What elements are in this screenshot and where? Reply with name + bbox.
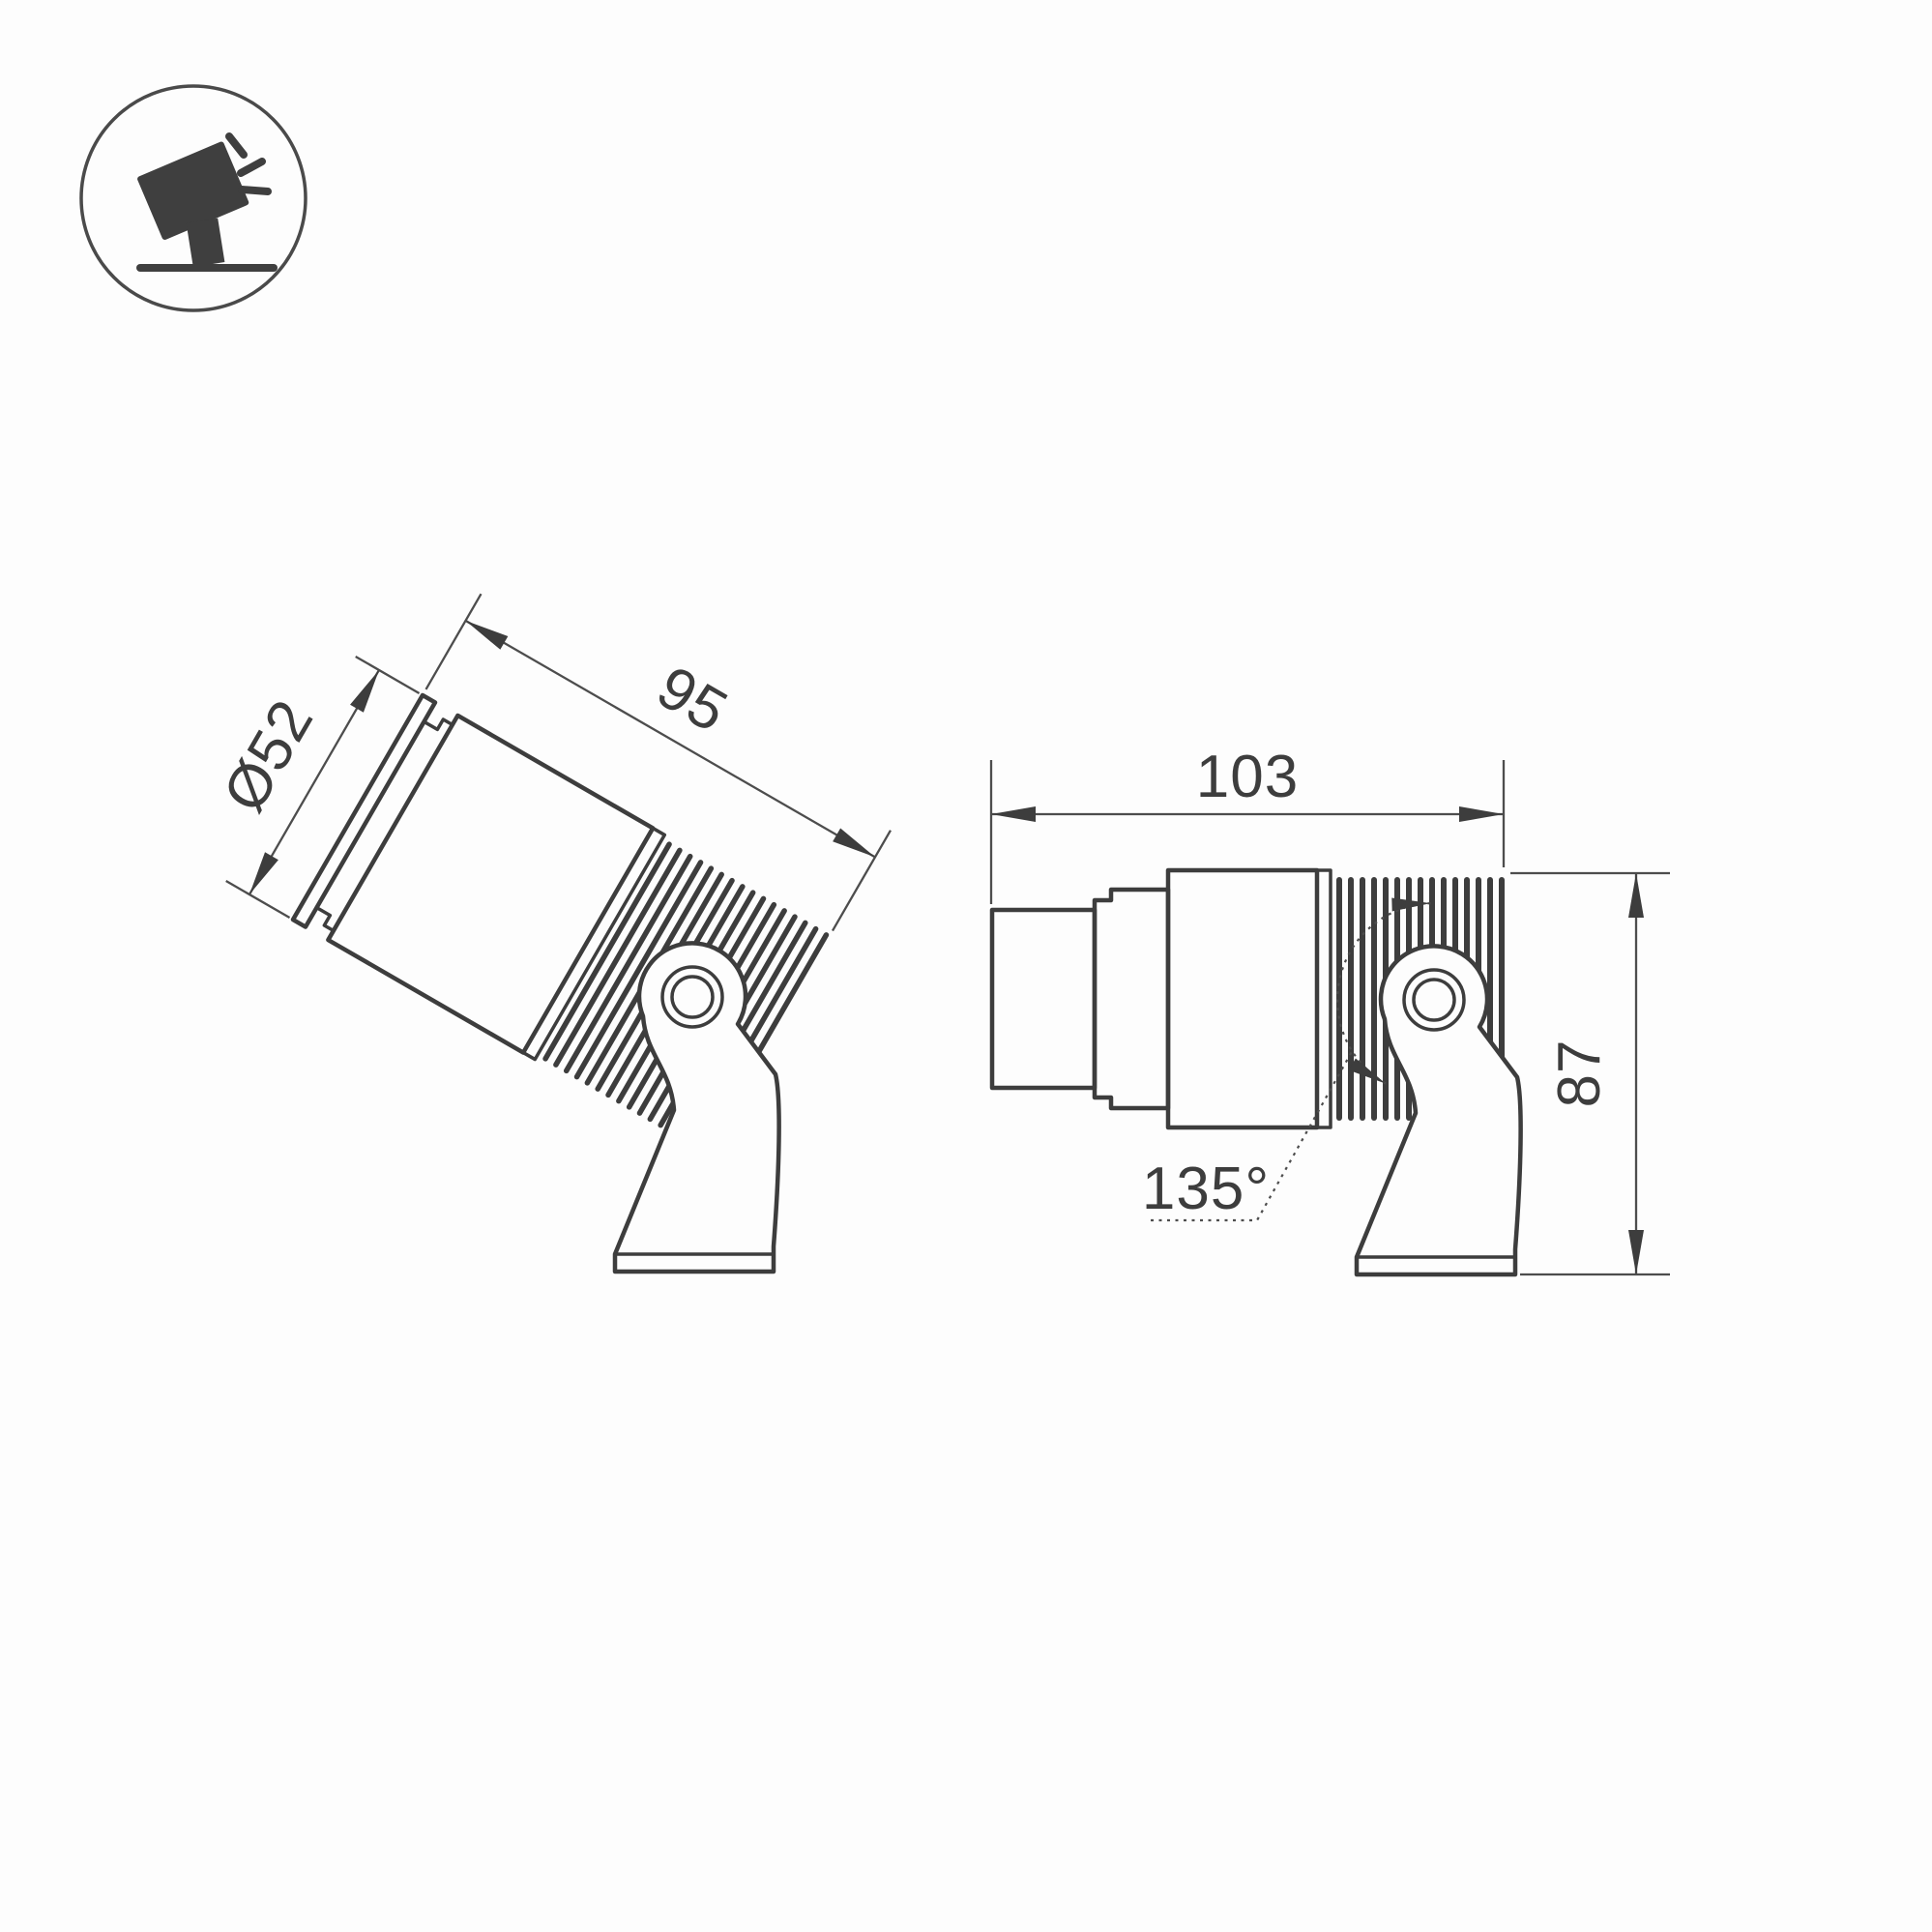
- rotation-135-label: 135°: [1142, 1156, 1270, 1222]
- drawing-canvas: 95 Ø52: [0, 0, 1932, 1932]
- lens-hood: [992, 910, 1095, 1088]
- dim-arrow: [1628, 873, 1644, 918]
- tilted-body-group: 95 Ø52: [175, 484, 915, 1156]
- arc-arrow: [1349, 1059, 1386, 1084]
- dim-arrow: [350, 666, 386, 713]
- tilted-view: 95 Ø52: [175, 484, 915, 1272]
- spotlight-pictogram-badge: [81, 86, 306, 310]
- height-87-label: 87: [1546, 1039, 1613, 1108]
- side-view: 135° 103 87: [991, 744, 1670, 1274]
- light-ray-icon: [229, 136, 244, 155]
- main-body: [1168, 870, 1317, 1127]
- spotlight-stem-icon: [187, 219, 225, 268]
- light-ray-icon: [242, 190, 268, 191]
- length-103-label: 103: [1196, 744, 1299, 810]
- dim-arrow: [1628, 1230, 1644, 1274]
- light-ray-icon: [241, 161, 262, 173]
- dim-arrow: [833, 828, 879, 864]
- dim-arrow: [1459, 806, 1504, 822]
- side-view-bracket: [1357, 946, 1521, 1274]
- diameter-52-label: Ø52: [211, 688, 327, 823]
- dim-arrow: [243, 852, 278, 898]
- bracket-outline: [615, 943, 779, 1272]
- dim-arrow: [462, 614, 509, 650]
- tilted-spotlight-icon: [136, 136, 274, 268]
- bracket-outline: [1357, 946, 1521, 1274]
- front-ring-step: [310, 712, 452, 931]
- dimension-103: 103: [991, 744, 1504, 904]
- dim-arrow: [991, 806, 1036, 822]
- technical-drawing: 95 Ø52: [0, 0, 1932, 1932]
- dimension-87: 87: [1510, 873, 1670, 1274]
- dimension-d52: Ø52: [175, 627, 420, 918]
- tilted-view-bracket: [615, 943, 779, 1272]
- mid-cylinder: [1095, 890, 1168, 1108]
